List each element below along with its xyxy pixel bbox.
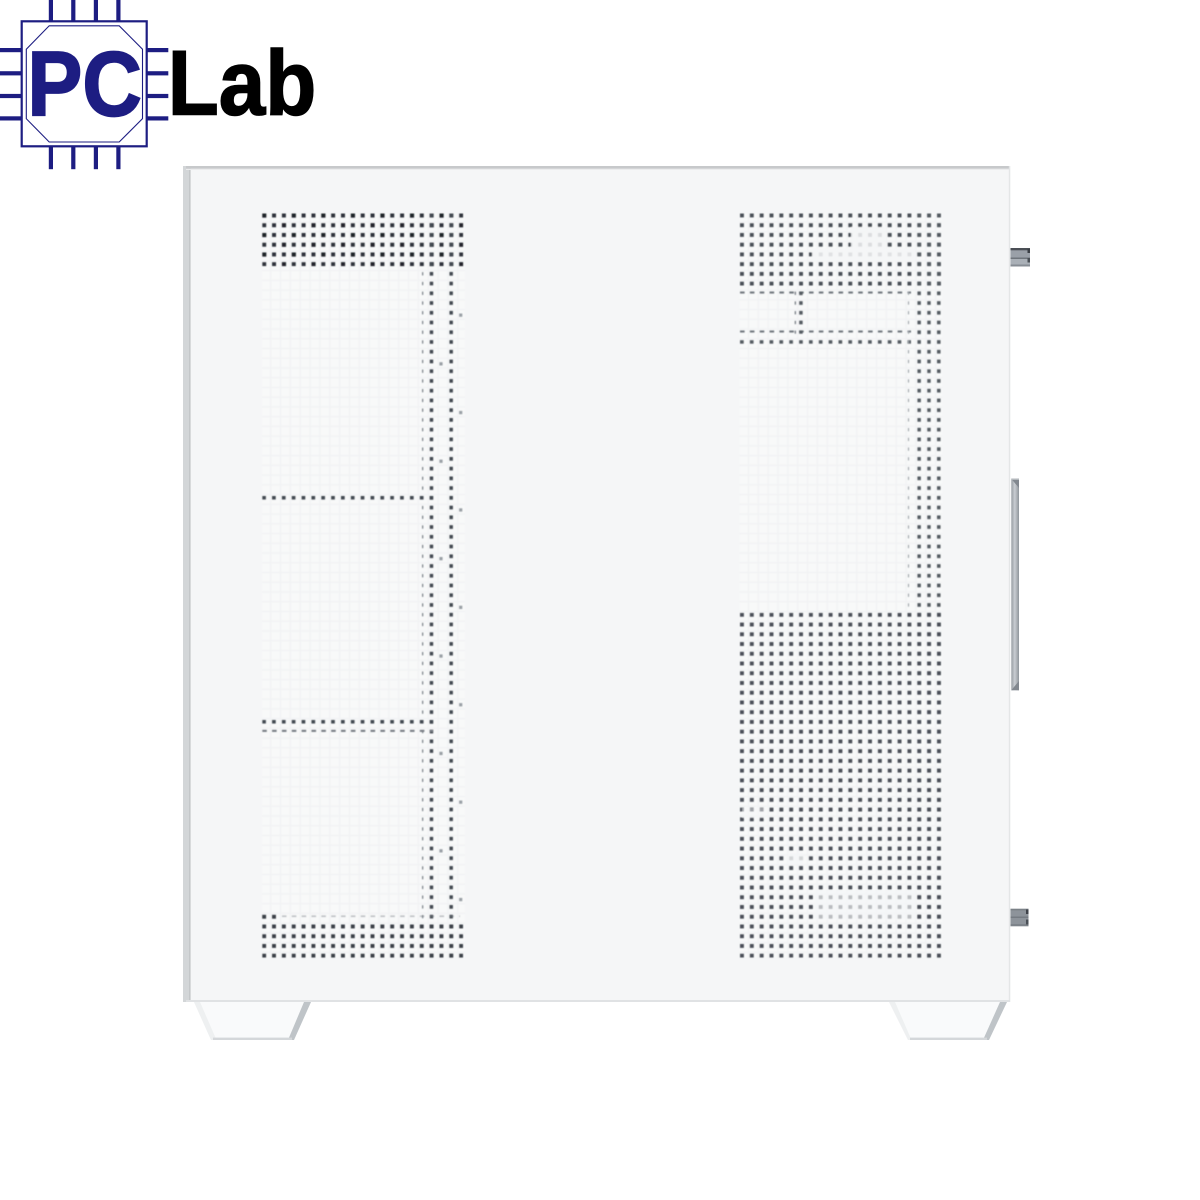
svg-text:PC: PC bbox=[27, 34, 141, 136]
svg-text:Lab: Lab bbox=[168, 32, 317, 134]
